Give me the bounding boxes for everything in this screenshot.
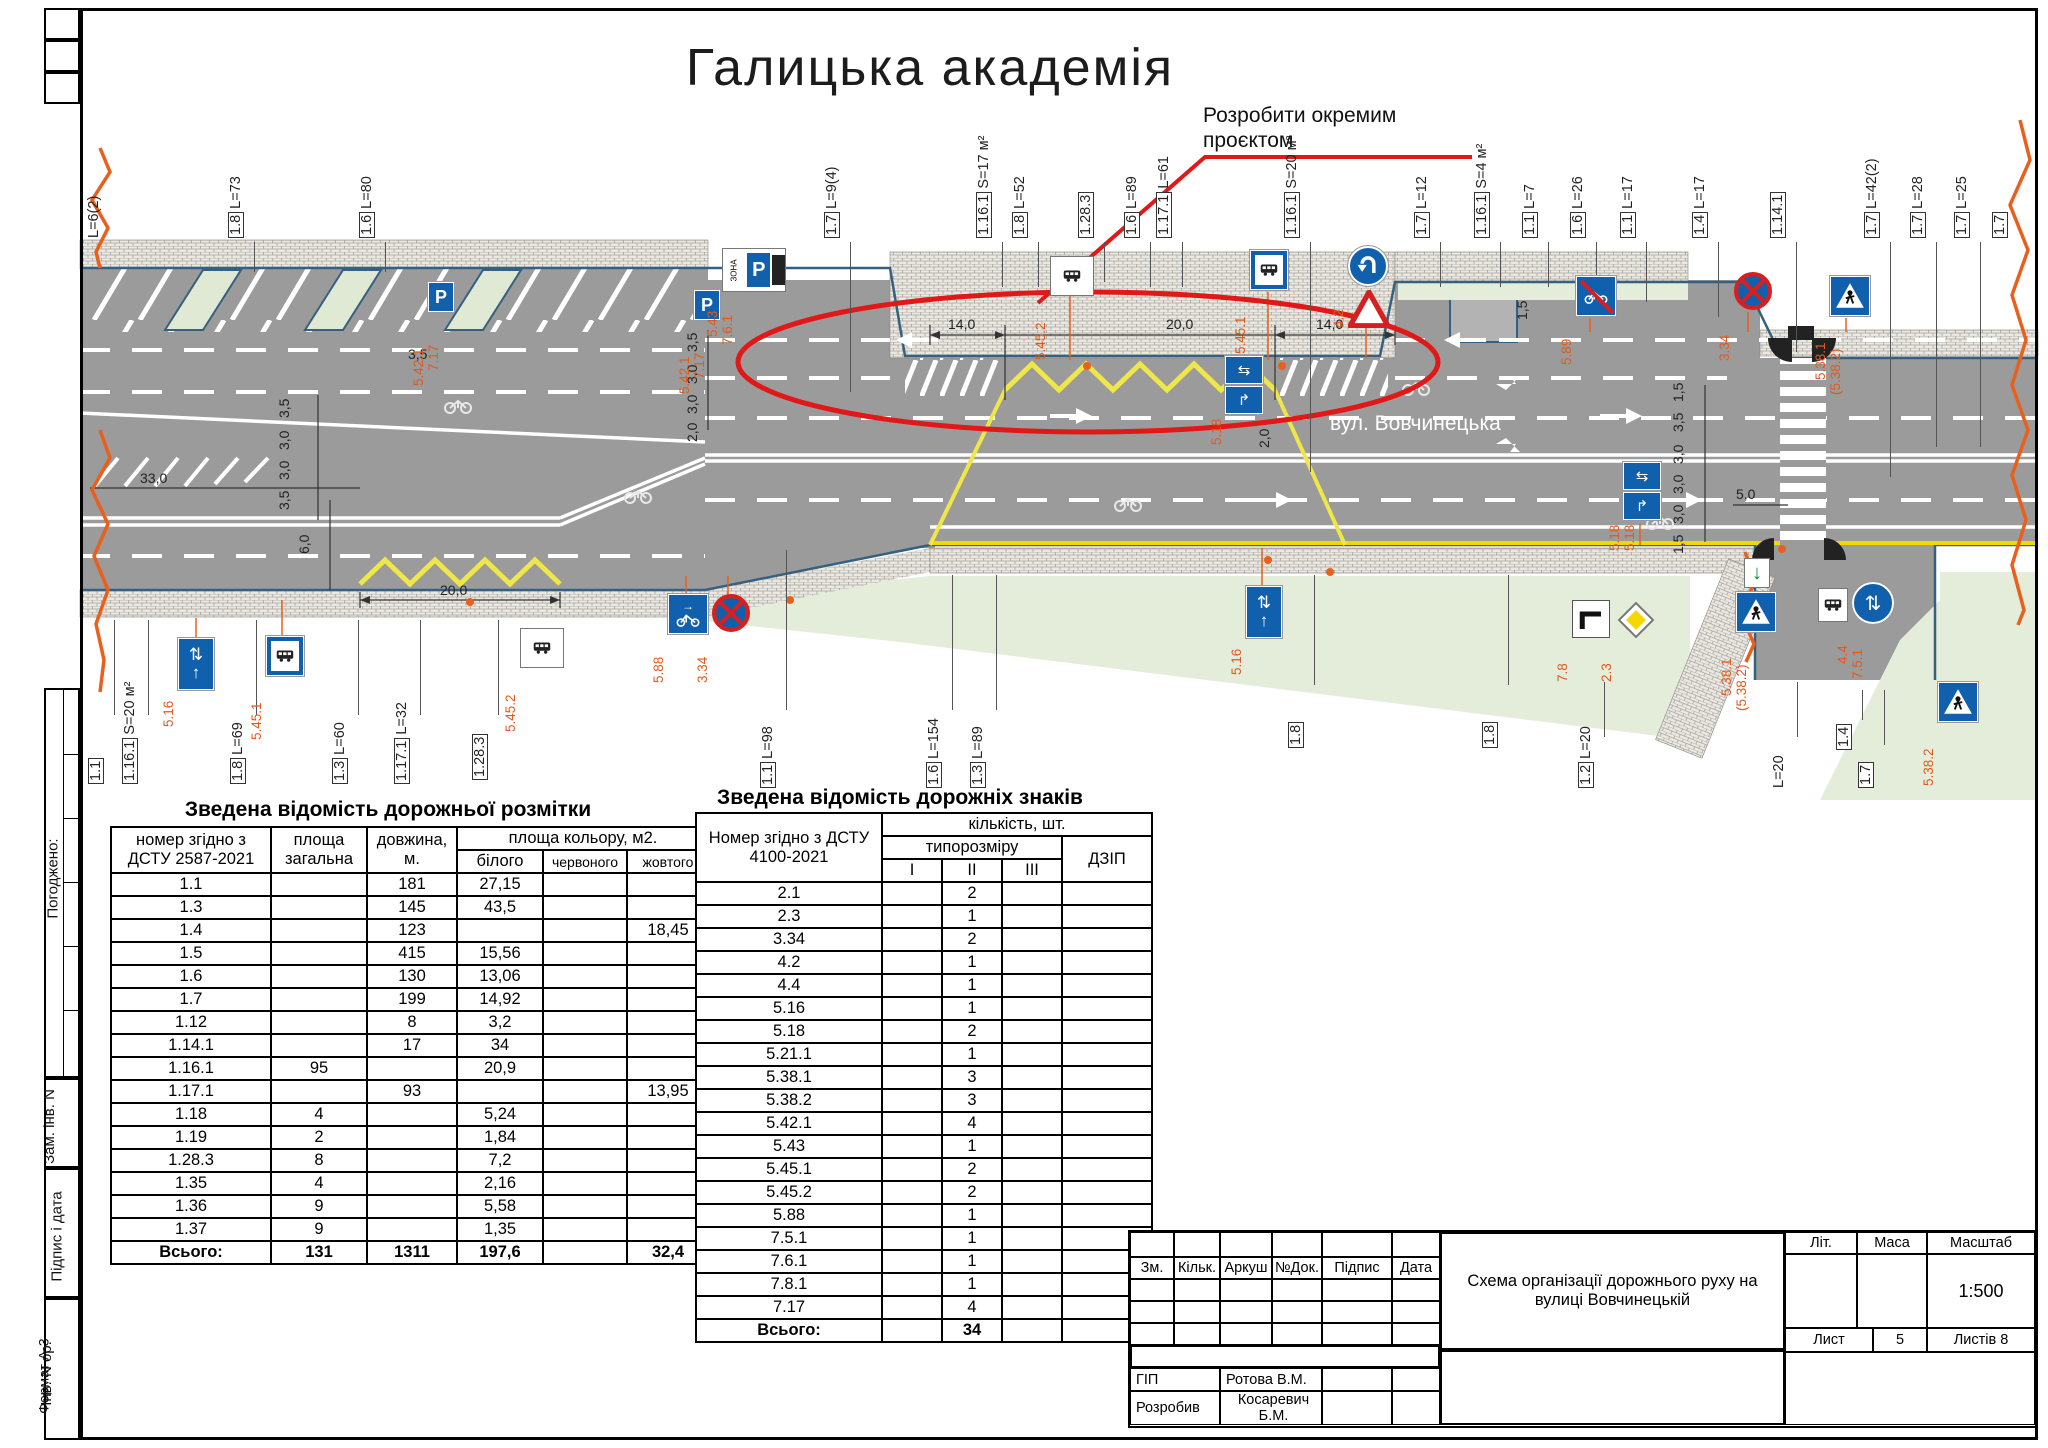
- strip-zam-inv: Зам. інв. N: [41, 1089, 58, 1164]
- format-label: Формат А-3: [36, 1338, 52, 1413]
- drawing-frame: [80, 8, 2038, 1440]
- strip-agreed: Погоджено:: [45, 834, 62, 924]
- strip-sign-date: Підпис і дата: [49, 1191, 66, 1281]
- drawing-page: Галицька академія Розробити окремим проє…: [0, 0, 2048, 1448]
